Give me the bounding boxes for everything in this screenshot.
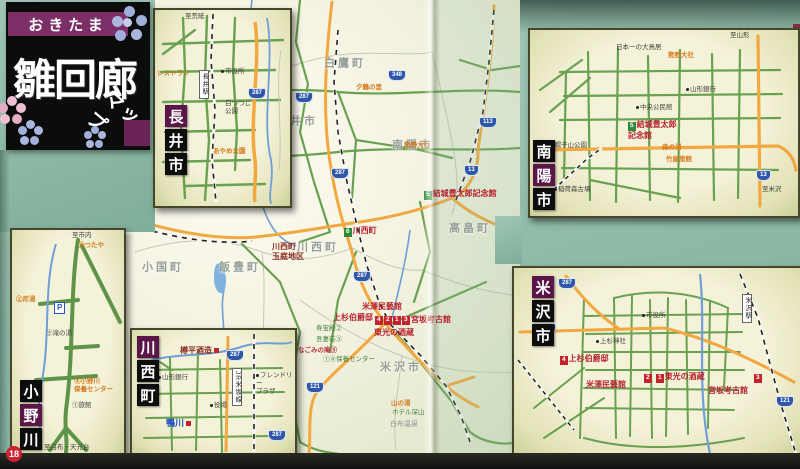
map-label: 日本一の大鳥居 (616, 44, 662, 52)
label-text: 役場 (214, 402, 227, 409)
map-label: 役場 (210, 402, 227, 410)
label-text: 至市内 (72, 232, 92, 239)
onogawa-title: 小野川 (20, 380, 42, 450)
nanyo-title: 南陽市 (533, 140, 555, 210)
map-label: 山形銀行 (158, 374, 188, 382)
label-text: 竹屋旅館 (666, 156, 692, 163)
label-text: ③滝の湯 (46, 330, 72, 337)
map-label: ⑤つたや (78, 242, 104, 250)
label-text: 287 (252, 90, 262, 96)
map-label: 3 (754, 372, 763, 383)
inset-title-char: 米 (532, 276, 554, 298)
label-text: 上杉伯爵邸 (569, 354, 609, 363)
map-label: 至白布・天元台 (44, 444, 90, 452)
map-label: JR米坂線 (232, 368, 242, 406)
label-text: 長井駅 (201, 73, 208, 96)
site-marker-icon (186, 421, 191, 426)
map-label: 宮坂考古館 (708, 386, 748, 396)
label-text: 121 (780, 398, 790, 404)
route-shield: 287 (226, 350, 244, 361)
map-label: あやめ公園 (213, 148, 246, 156)
map-label: 長井駅 (199, 70, 209, 99)
poi-dot-icon (636, 106, 639, 109)
page-number-badge: 18 (6, 446, 22, 462)
inset-map-nagai: 至荒砥レストラン市役所長井駅白つつじ 公園あやめ公園287 長井市 (153, 8, 292, 208)
label-text: 稲荷森古墳 (558, 186, 591, 193)
label-text: P (57, 303, 62, 312)
map-label: 至米沢 (762, 186, 782, 194)
label-text: 結城豊太郎 記念館 (628, 120, 677, 140)
poi-dot-icon (256, 374, 259, 377)
label-text: 287 (562, 280, 572, 286)
map-label: 至山形 (730, 32, 750, 40)
map-title-block: おきたま 雛回廊 マップ (0, 0, 158, 158)
inset-title-char: 井 (165, 129, 187, 151)
label-text: ④小野川 保養センター (74, 378, 113, 393)
site-number-badge: 5 (628, 122, 636, 131)
map-label: 竹屋旅館 (666, 156, 692, 164)
map-label: 至市内 (72, 232, 92, 240)
inset-title-char: 市 (165, 153, 187, 175)
label-text: 山形銀行 (690, 86, 716, 93)
left-edge-shadow (0, 150, 10, 453)
route-shield: 287 (558, 278, 576, 289)
map-label: 鴨川 (166, 418, 191, 429)
label-text: 白つつじ 公園 (225, 100, 251, 115)
map-label: 至荒砥 (185, 13, 205, 21)
label-text: 13 (760, 172, 767, 178)
yonezawa-title: 米沢市 (532, 276, 554, 346)
inset-map-onogawa: 至市内⑤つたや②尼湯P③滝の湯④小野川 保養センター①旅館至白布・天元台 小野川 (10, 228, 126, 457)
label-text: 中央公民館 (640, 104, 673, 111)
inset-title-char: 沢 (532, 300, 554, 322)
map-label: レストラン (157, 70, 190, 78)
map-label: 中央公民館 (636, 104, 673, 112)
decor-square (124, 120, 150, 146)
site-number-badge: 2 (644, 374, 652, 383)
poi-dot-icon (686, 88, 689, 91)
label-text: 287 (230, 352, 240, 358)
site-number-badge: 4 (560, 356, 568, 365)
map-label: 5結城豊太郎 記念館 (628, 120, 677, 140)
route-shield: 121 (776, 396, 794, 407)
label-text: フレンドリー プラザ (256, 372, 293, 395)
poi-dot-icon (210, 404, 213, 407)
inset-title-char: 西 (137, 360, 159, 382)
label-text: レストラン (157, 70, 190, 77)
label-text: ①旅館 (72, 402, 92, 409)
map-label: 市役所 (221, 68, 245, 76)
map-label: 4上杉伯爵邸 (560, 354, 609, 365)
magazine-spread: 白鷹町長井市南陽市小国町飯豊町川西町高畠町米沢市5結城豊太郎記念館6川西町川西町… (0, 0, 800, 469)
inset-title-char: 市 (533, 188, 555, 210)
map-label: 米沢駅 (742, 294, 752, 323)
inset-map-yonezawa: 287121121米沢駅市役所上杉神社4上杉伯爵邸米澤民藝館21東光の酒蔵3宮坂… (512, 266, 800, 457)
poi-dot-icon (596, 340, 599, 343)
map-label: 1東光の酒蔵 (656, 372, 705, 383)
label-text: 至白布・天元台 (44, 444, 90, 451)
label-text: 東光の酒蔵 (665, 372, 705, 381)
inset-title-char: 市 (532, 324, 554, 346)
label-text: 米澤民藝館 (586, 380, 626, 389)
map-label: P (54, 302, 65, 314)
dam-lake (214, 264, 226, 294)
route-shield: 13 (756, 170, 771, 181)
label-text: あやめ公園 (213, 148, 246, 155)
label-text: 山形銀行 (162, 374, 188, 381)
inset-title-char: 陽 (533, 164, 555, 186)
background-mid-gap (495, 216, 522, 264)
label-text: 宮坂考古館 (708, 386, 748, 395)
label-text: 米沢駅 (744, 297, 751, 320)
map-label: 市役所 (642, 312, 666, 320)
nagai-title: 長井市 (165, 105, 187, 175)
inset-title-char: 川 (137, 336, 159, 358)
route-shield: 287 (248, 88, 266, 99)
label-text: ②尼湯 (16, 296, 36, 303)
map-label: ①旅館 (72, 402, 92, 410)
inset-map-kawanishi: 樽平酒造鴨川役場フレンドリー プラザ山形銀行JR米坂線287287 川西町 (130, 328, 297, 457)
title-ribbon-text: おきたま (28, 14, 108, 35)
map-label: 2 (644, 372, 653, 383)
map-label: 白つつじ 公園 (225, 100, 251, 116)
label-text: 市役所 (225, 68, 245, 75)
site-number-badge: 3 (754, 374, 762, 383)
label-text: 日本一の大鳥居 (616, 44, 662, 51)
page-fold (423, 0, 440, 453)
route-shield: 287 (268, 430, 286, 441)
label-text: 市役所 (646, 312, 666, 319)
inset-title-char: 南 (533, 140, 555, 162)
label-text: 樽平酒造 (180, 346, 212, 355)
label-text: 森の湯 (662, 144, 682, 151)
map-label: 稲荷森古墳 (554, 186, 591, 194)
map-label: 上杉神社 (596, 338, 626, 346)
inset-title-char: 長 (165, 105, 187, 127)
poi-dot-icon (642, 314, 645, 317)
map-label: ④小野川 保養センター (74, 378, 113, 394)
label-text: 287 (272, 432, 282, 438)
label-text: 上杉神社 (600, 338, 626, 345)
label-text: 至荒砥 (185, 13, 205, 20)
map-label: 米澤民藝館 (586, 380, 626, 390)
inset-map-nanyo: 至山形熊野大社日本一の大鳥居山形銀行中央公民館5結城豊太郎 記念館森の湯竹屋旅館… (528, 28, 800, 218)
site-marker-icon (214, 348, 219, 353)
map-label: ②尼湯 (16, 296, 36, 304)
label-text: 鴨川 (166, 418, 184, 428)
page-number: 18 (9, 449, 19, 459)
page-bottom-edge (0, 453, 800, 469)
inset-title-char: 町 (137, 384, 159, 406)
nanyo-labels: 至山形熊野大社日本一の大鳥居山形銀行中央公民館5結城豊太郎 記念館森の湯竹屋旅館… (530, 30, 798, 216)
inset-title-char: 川 (20, 428, 42, 450)
map-label: 熊野大社 (668, 52, 694, 60)
kawanishi-title: 川西町 (137, 336, 159, 406)
map-label: フレンドリー プラザ (256, 372, 295, 395)
title-ribbon: おきたま (8, 12, 128, 36)
inset-title-char: 小 (20, 380, 42, 402)
label-text: 熊野大社 (668, 52, 694, 59)
label-text: JR米坂線 (234, 371, 241, 403)
yonezawa-labels: 287121121米沢駅市役所上杉神社4上杉伯爵邸米澤民藝館21東光の酒蔵3宮坂… (514, 268, 800, 455)
label-text: 至米沢 (762, 186, 782, 193)
map-label: 森の湯 (662, 144, 682, 152)
site-number-badge: 1 (656, 374, 664, 383)
inset-title-char: 野 (20, 404, 42, 426)
map-label: ③滝の湯 (46, 330, 72, 338)
map-label: 山形銀行 (686, 86, 716, 94)
label-text: 至山形 (730, 32, 750, 39)
poi-dot-icon (221, 70, 224, 73)
label-text: ⑤つたや (78, 242, 104, 249)
map-label: 樽平酒造 (180, 346, 219, 356)
